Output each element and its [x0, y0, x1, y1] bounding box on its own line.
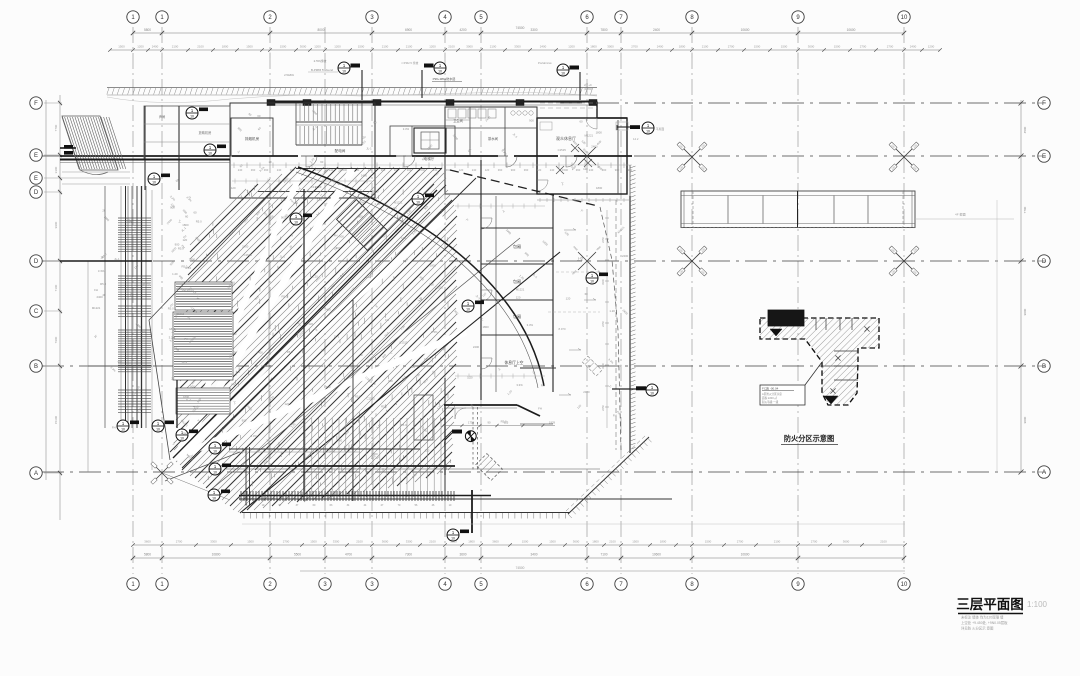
svg-text:10: 10 — [208, 152, 212, 156]
svg-text:10: 10 — [438, 70, 442, 74]
svg-text:FH: FH — [334, 233, 338, 237]
svg-text:900: 900 — [170, 206, 175, 210]
svg-text:4700: 4700 — [345, 552, 352, 556]
svg-text:1800: 1800 — [590, 45, 597, 49]
svg-text:1800: 1800 — [430, 264, 437, 268]
svg-text:下: 下 — [359, 189, 362, 193]
svg-text:1750: 1750 — [468, 421, 474, 425]
svg-text:9000: 9000 — [1023, 416, 1027, 423]
svg-text:FH: FH — [385, 318, 389, 322]
svg-text:平屋面: 平屋面 — [656, 127, 665, 131]
svg-text:900: 900 — [232, 332, 237, 336]
svg-text:5800: 5800 — [144, 552, 151, 556]
svg-text:1500: 1500 — [754, 45, 761, 49]
svg-text:2400: 2400 — [152, 45, 159, 49]
svg-text:74500: 74500 — [516, 566, 525, 570]
svg-text:上: 上 — [133, 392, 136, 396]
svg-text:900: 900 — [388, 379, 393, 383]
svg-text:M1221: M1221 — [585, 134, 594, 138]
svg-text:3000: 3000 — [607, 45, 614, 49]
svg-text:1500: 1500 — [522, 540, 529, 544]
svg-text:900: 900 — [429, 283, 434, 287]
svg-text:1200: 1200 — [429, 45, 436, 49]
svg-text:下: 下 — [233, 401, 236, 405]
svg-text:C: C — [34, 309, 39, 315]
svg-text:3.3%: 3.3% — [98, 269, 105, 273]
svg-text:R5.0: R5.0 — [178, 247, 184, 251]
svg-text:120: 120 — [485, 168, 490, 172]
svg-text:2400: 2400 — [540, 45, 547, 49]
svg-text:10600: 10600 — [652, 552, 661, 556]
svg-text:2400: 2400 — [324, 385, 331, 389]
svg-text:上: 上 — [197, 295, 200, 299]
svg-text:6900: 6900 — [405, 28, 412, 32]
svg-text:C1515: C1515 — [244, 253, 253, 257]
svg-text:3600: 3600 — [459, 552, 466, 556]
svg-text:M1221: M1221 — [394, 200, 403, 204]
svg-text:60: 60 — [185, 214, 189, 218]
svg-text:1500: 1500 — [834, 45, 841, 49]
svg-text:M1221: M1221 — [92, 306, 101, 310]
svg-text:900: 900 — [511, 168, 516, 172]
svg-text:10: 10 — [466, 308, 470, 312]
svg-text:3600: 3600 — [492, 540, 499, 544]
svg-text:1800: 1800 — [371, 452, 378, 456]
svg-text:2400: 2400 — [324, 308, 331, 312]
svg-text:E: E — [34, 153, 38, 159]
svg-text:10: 10 — [342, 70, 346, 74]
svg-text:10: 10 — [152, 181, 156, 185]
svg-text:9900: 9900 — [54, 221, 58, 228]
svg-text:JL-1: JL-1 — [334, 334, 340, 338]
svg-text:1.20: 1.20 — [312, 274, 318, 278]
svg-text:10: 10 — [121, 428, 125, 432]
svg-text:三层平面图: 三层平面图 — [956, 597, 1024, 612]
svg-text:3300: 3300 — [530, 28, 537, 32]
svg-text:120: 120 — [401, 236, 406, 240]
svg-text:3000: 3000 — [808, 45, 815, 49]
svg-text:1.20: 1.20 — [609, 309, 615, 313]
svg-text:C1515: C1515 — [558, 148, 567, 152]
svg-text:JL-1: JL-1 — [330, 178, 336, 182]
svg-text:2700: 2700 — [887, 45, 894, 49]
svg-text:120: 120 — [281, 198, 286, 202]
svg-text:2100: 2100 — [774, 540, 781, 544]
svg-text:1800: 1800 — [596, 131, 603, 135]
svg-text:3300: 3300 — [210, 540, 217, 544]
svg-text:360: 360 — [576, 168, 581, 172]
svg-text:D: D — [1042, 259, 1047, 265]
svg-text:10: 10 — [590, 280, 594, 284]
svg-text:耐火等级:一级: 耐火等级:一级 — [762, 400, 779, 404]
svg-text:上空处 +9.450处, +9N0.05层板: 上空处 +9.450处, +9N0.05层板 — [961, 620, 1008, 625]
svg-text:声闸: 声闸 — [159, 114, 165, 119]
svg-text:2100: 2100 — [172, 45, 179, 49]
svg-text:8000: 8000 — [317, 28, 324, 32]
svg-text:60: 60 — [339, 438, 343, 442]
svg-text:360: 360 — [446, 168, 451, 172]
svg-text:3000: 3000 — [300, 45, 307, 49]
svg-text:900: 900 — [293, 201, 298, 205]
svg-text:B-PM65 5%found: B-PM65 5%found — [311, 68, 333, 72]
svg-text:FH: FH — [94, 288, 98, 292]
svg-text:7100: 7100 — [600, 552, 607, 556]
svg-text:2100: 2100 — [490, 45, 497, 49]
svg-text:1500: 1500 — [246, 45, 253, 49]
svg-text:10: 10 — [190, 115, 194, 119]
svg-text:2400: 2400 — [189, 258, 196, 262]
svg-text:7700: 7700 — [1023, 206, 1027, 213]
svg-text:2400: 2400 — [910, 45, 917, 49]
svg-text:2100: 2100 — [702, 45, 709, 49]
svg-text:1.20: 1.20 — [374, 202, 380, 206]
svg-text:2400: 2400 — [242, 244, 249, 248]
svg-text:1.20: 1.20 — [467, 376, 473, 380]
svg-text:900: 900 — [339, 235, 344, 239]
svg-text:下: 下 — [193, 406, 196, 410]
svg-text:上: 上 — [390, 350, 393, 354]
svg-text:D: D — [34, 190, 39, 196]
svg-text:1800: 1800 — [482, 325, 489, 329]
svg-text:240: 240 — [277, 168, 282, 172]
svg-text:JL-1: JL-1 — [279, 255, 285, 259]
svg-text:2100: 2100 — [197, 45, 204, 49]
svg-text:9000: 9000 — [1023, 308, 1027, 315]
svg-text:FH: FH — [538, 407, 542, 411]
svg-text:10600: 10600 — [741, 552, 750, 556]
svg-text:1.20: 1.20 — [317, 197, 323, 201]
svg-text:2F: 2F — [171, 376, 175, 380]
svg-text:2F: 2F — [269, 160, 273, 164]
svg-text:3.3%: 3.3% — [403, 127, 410, 131]
svg-text:2100: 2100 — [429, 540, 436, 544]
svg-text:i=PM2.5 找坡: i=PM2.5 找坡 — [402, 61, 419, 65]
svg-text:A: A — [34, 471, 38, 477]
svg-text:2400: 2400 — [329, 449, 336, 453]
svg-text:2700: 2700 — [283, 540, 290, 544]
svg-text:1500: 1500 — [118, 45, 125, 49]
svg-text:2700: 2700 — [176, 540, 183, 544]
svg-text:上: 上 — [481, 317, 484, 321]
svg-text:1800: 1800 — [222, 45, 229, 49]
svg-text:2400: 2400 — [583, 390, 590, 394]
svg-text:4500: 4500 — [1023, 126, 1027, 133]
svg-text:1500: 1500 — [358, 45, 365, 49]
svg-text:3300: 3300 — [514, 45, 521, 49]
svg-text:240: 240 — [550, 168, 555, 172]
svg-text:1200: 1200 — [928, 45, 935, 49]
svg-text:1:100: 1:100 — [1027, 600, 1048, 609]
svg-text:10800: 10800 — [212, 552, 221, 556]
svg-text:2100: 2100 — [356, 540, 363, 544]
svg-text:卫生间: 卫生间 — [453, 118, 463, 123]
svg-text:3600: 3600 — [573, 540, 580, 544]
svg-text:1800: 1800 — [140, 330, 147, 334]
svg-text:5500: 5500 — [294, 552, 301, 556]
svg-text:900: 900 — [615, 168, 620, 172]
svg-text:R5.0: R5.0 — [355, 394, 361, 398]
svg-text:120: 120 — [308, 322, 313, 326]
svg-text:FH: FH — [613, 413, 617, 417]
svg-text:1800: 1800 — [592, 540, 599, 544]
svg-text:上: 上 — [360, 352, 363, 356]
svg-text:7300: 7300 — [405, 552, 412, 556]
svg-text:120: 120 — [583, 167, 588, 171]
svg-text:3.3%: 3.3% — [516, 383, 523, 387]
svg-text:7800: 7800 — [600, 28, 607, 32]
svg-text:240: 240 — [238, 168, 243, 172]
svg-text:240: 240 — [472, 168, 477, 172]
svg-text:A区防火分区示意: A区防火分区示意 — [762, 392, 782, 396]
svg-text:R5.0: R5.0 — [287, 350, 293, 354]
svg-text:JL-1: JL-1 — [366, 146, 372, 150]
svg-text:A: A — [1042, 470, 1046, 476]
svg-text:60: 60 — [193, 211, 197, 215]
svg-text:4F 截面: 4F 截面 — [955, 212, 966, 217]
svg-text:2250: 2250 — [601, 321, 605, 327]
svg-text:3300: 3300 — [333, 540, 340, 544]
svg-text:60: 60 — [257, 114, 261, 118]
svg-text:2F: 2F — [102, 293, 106, 297]
svg-text:360: 360 — [498, 168, 503, 172]
svg-text:2F: 2F — [102, 209, 106, 213]
svg-text:10: 10 — [156, 428, 160, 432]
svg-text:2100: 2100 — [406, 45, 413, 49]
svg-text:E: E — [34, 176, 38, 182]
svg-text:B: B — [34, 364, 38, 370]
svg-text:FH: FH — [360, 201, 364, 205]
svg-text:2.5%找坡: 2.5%找坡 — [314, 58, 327, 63]
svg-text:1800: 1800 — [424, 357, 431, 361]
svg-text:2F: 2F — [338, 168, 342, 172]
svg-text:未标注 墙体 均为120厚隔 墙: 未标注 墙体 均为120厚隔 墙 — [961, 615, 1004, 620]
svg-text:1500: 1500 — [632, 540, 639, 544]
svg-text:120: 120 — [284, 402, 289, 406]
svg-text:包厢: 包厢 — [513, 278, 521, 284]
svg-text:M1221: M1221 — [516, 287, 525, 291]
svg-text:1500: 1500 — [562, 168, 568, 172]
svg-text:R5.0: R5.0 — [401, 423, 407, 427]
svg-text:10: 10 — [561, 72, 565, 76]
svg-text:M1221: M1221 — [142, 283, 151, 287]
svg-text:2250: 2250 — [601, 237, 605, 243]
svg-text:1200: 1200 — [568, 45, 575, 49]
svg-text:下: 下 — [561, 182, 564, 186]
svg-text:2250: 2250 — [601, 405, 605, 411]
svg-text:休息厅上空: 休息厅上空 — [505, 360, 524, 365]
svg-text:R5.0: R5.0 — [282, 294, 288, 298]
svg-text:1200: 1200 — [137, 45, 144, 49]
svg-text:900: 900 — [358, 214, 363, 218]
svg-text:F: F — [1042, 101, 1046, 107]
svg-text:120: 120 — [516, 296, 521, 300]
svg-text:1200: 1200 — [334, 45, 341, 49]
svg-text:900: 900 — [529, 118, 534, 122]
svg-text:90: 90 — [488, 421, 491, 425]
svg-text:2400: 2400 — [653, 28, 660, 32]
svg-text:FH: FH — [393, 207, 397, 211]
svg-text:2700: 2700 — [631, 45, 638, 49]
svg-text:(9.450): (9.450) — [584, 87, 592, 91]
svg-text:10: 10 — [294, 221, 298, 225]
svg-text:60: 60 — [320, 160, 324, 164]
svg-text:3300: 3300 — [601, 279, 605, 285]
svg-text:120: 120 — [537, 168, 542, 172]
svg-text:10600: 10600 — [847, 28, 856, 32]
svg-text:3600: 3600 — [843, 540, 850, 544]
svg-text:详见防 火分区示 意图: 详见防 火分区示 意图 — [961, 626, 994, 631]
svg-text:D: D — [34, 259, 39, 265]
svg-text:900: 900 — [242, 419, 247, 423]
svg-text:240: 240 — [589, 168, 594, 172]
svg-text:900: 900 — [118, 360, 123, 364]
svg-text:R5.0: R5.0 — [381, 404, 387, 408]
svg-text:FH: FH — [541, 384, 545, 388]
svg-text:3300: 3300 — [406, 540, 413, 544]
svg-text:3600: 3600 — [382, 540, 389, 544]
svg-text:3.3%: 3.3% — [261, 364, 268, 368]
svg-text:防火分区示意图: 防火分区示意图 — [784, 434, 834, 443]
svg-text:1500: 1500 — [781, 45, 788, 49]
svg-text:1800: 1800 — [596, 186, 603, 190]
svg-text:2F: 2F — [363, 136, 367, 140]
svg-text:JL-1: JL-1 — [182, 360, 188, 364]
svg-text:C1515: C1515 — [176, 312, 185, 316]
svg-text:3600: 3600 — [144, 540, 151, 544]
svg-text:1800: 1800 — [182, 431, 189, 435]
svg-text:2100: 2100 — [382, 45, 389, 49]
svg-text:3.3%: 3.3% — [431, 330, 438, 334]
svg-text:8.970: 8.970 — [559, 327, 566, 331]
svg-text:2700: 2700 — [860, 45, 867, 49]
svg-text:10: 10 — [901, 582, 908, 588]
svg-text:FC店 -00.04: FC店 -00.04 — [762, 386, 779, 391]
svg-text:3000: 3000 — [466, 45, 473, 49]
svg-text:2400: 2400 — [657, 45, 664, 49]
svg-text:C1515: C1515 — [399, 341, 408, 345]
svg-text:74500: 74500 — [516, 26, 525, 30]
svg-text:P96+9892防水层: P96+9892防水层 — [433, 76, 456, 81]
svg-text:7900: 7900 — [54, 336, 58, 343]
svg-text:360: 360 — [524, 168, 529, 172]
svg-text:2100: 2100 — [880, 540, 887, 544]
svg-text:放映机房: 放映机房 — [199, 130, 212, 135]
svg-text:3400: 3400 — [530, 552, 537, 556]
svg-text:包厢: 包厢 — [513, 313, 521, 319]
svg-text:E: E — [1042, 154, 1046, 160]
svg-text:2700: 2700 — [728, 45, 735, 49]
svg-text:R5.0: R5.0 — [196, 219, 202, 223]
svg-text:10: 10 — [901, 15, 908, 21]
svg-text:1500: 1500 — [280, 45, 287, 49]
svg-text:2400: 2400 — [361, 174, 368, 178]
svg-text:2400: 2400 — [622, 254, 629, 258]
svg-text:FH: FH — [231, 382, 235, 386]
svg-text:1500: 1500 — [549, 540, 556, 544]
svg-text:R5.0: R5.0 — [100, 282, 106, 286]
svg-text:15300: 15300 — [54, 415, 58, 424]
svg-text:10: 10 — [451, 537, 455, 541]
svg-text:FH: FH — [112, 425, 116, 429]
svg-text:2层+9: 2层+9 — [584, 83, 592, 87]
svg-text:120: 120 — [459, 168, 464, 172]
svg-text:10: 10 — [646, 130, 650, 134]
svg-text:120: 120 — [425, 448, 430, 452]
svg-text:1200: 1200 — [314, 45, 321, 49]
svg-text:7100: 7100 — [54, 284, 58, 291]
svg-text:C1515: C1515 — [435, 285, 444, 289]
svg-text:JL-1: JL-1 — [186, 398, 192, 402]
svg-text:R5.0: R5.0 — [373, 190, 379, 194]
svg-text:1500: 1500 — [247, 540, 254, 544]
svg-text:包厢: 包厢 — [513, 243, 521, 249]
svg-text:1800: 1800 — [468, 540, 475, 544]
svg-text:3300: 3300 — [601, 363, 605, 369]
svg-text:60: 60 — [579, 119, 583, 123]
svg-text:60: 60 — [585, 292, 589, 296]
svg-text:4200: 4200 — [459, 28, 466, 32]
svg-text:1800: 1800 — [679, 45, 686, 49]
svg-text:1500: 1500 — [310, 540, 317, 544]
svg-text:茶水间: 茶水间 — [488, 136, 499, 141]
svg-text:1800: 1800 — [660, 540, 667, 544]
svg-text:排烟机房: 排烟机房 — [245, 136, 260, 141]
svg-text:2400: 2400 — [591, 145, 598, 149]
svg-text:120: 120 — [566, 296, 571, 300]
svg-text:3.3%: 3.3% — [251, 434, 258, 438]
svg-text:7700: 7700 — [54, 124, 58, 131]
svg-text:FH: FH — [321, 349, 325, 353]
svg-text:2400: 2400 — [473, 345, 480, 349]
svg-text:R5.0: R5.0 — [181, 264, 187, 268]
svg-text:2700: 2700 — [811, 540, 818, 544]
svg-text:面积:2200 ㎡: 面积:2200 ㎡ — [762, 396, 777, 400]
svg-text:1.20: 1.20 — [172, 272, 178, 276]
svg-text:5800: 5800 — [144, 28, 151, 32]
svg-text:1500: 1500 — [705, 540, 712, 544]
svg-text:配电间: 配电间 — [335, 148, 346, 153]
svg-text:B: B — [1042, 364, 1046, 370]
svg-text:10: 10 — [213, 450, 217, 454]
svg-text:R5.0: R5.0 — [501, 420, 507, 424]
svg-text:2.5&6%: 2.5&6% — [284, 73, 294, 77]
svg-text:10: 10 — [213, 471, 217, 475]
svg-text:2700: 2700 — [737, 540, 744, 544]
svg-text:10: 10 — [180, 437, 184, 441]
svg-text:10: 10 — [650, 392, 654, 396]
svg-text:Prefabricat.: Prefabricat. — [538, 61, 553, 65]
svg-text:60: 60 — [373, 121, 377, 125]
svg-text:900: 900 — [336, 246, 341, 250]
svg-text:3.3%: 3.3% — [527, 323, 534, 327]
svg-text:JL-1: JL-1 — [114, 257, 120, 261]
svg-text:2400: 2400 — [257, 350, 264, 354]
svg-text:360: 360 — [251, 168, 256, 172]
svg-text:10: 10 — [416, 201, 420, 205]
svg-text:2F: 2F — [101, 256, 105, 260]
svg-text:上: 上 — [178, 219, 181, 223]
svg-text:2100: 2100 — [448, 45, 455, 49]
svg-text:14.2: 14.2 — [633, 137, 639, 141]
svg-text:FH: FH — [366, 275, 370, 279]
svg-text:120: 120 — [231, 186, 236, 190]
svg-text:C1515: C1515 — [366, 397, 375, 401]
svg-text:10600: 10600 — [741, 28, 750, 32]
svg-text:10: 10 — [212, 497, 216, 501]
svg-text:F: F — [34, 101, 38, 107]
svg-text:2100: 2100 — [609, 540, 616, 544]
svg-text:900: 900 — [175, 242, 180, 246]
